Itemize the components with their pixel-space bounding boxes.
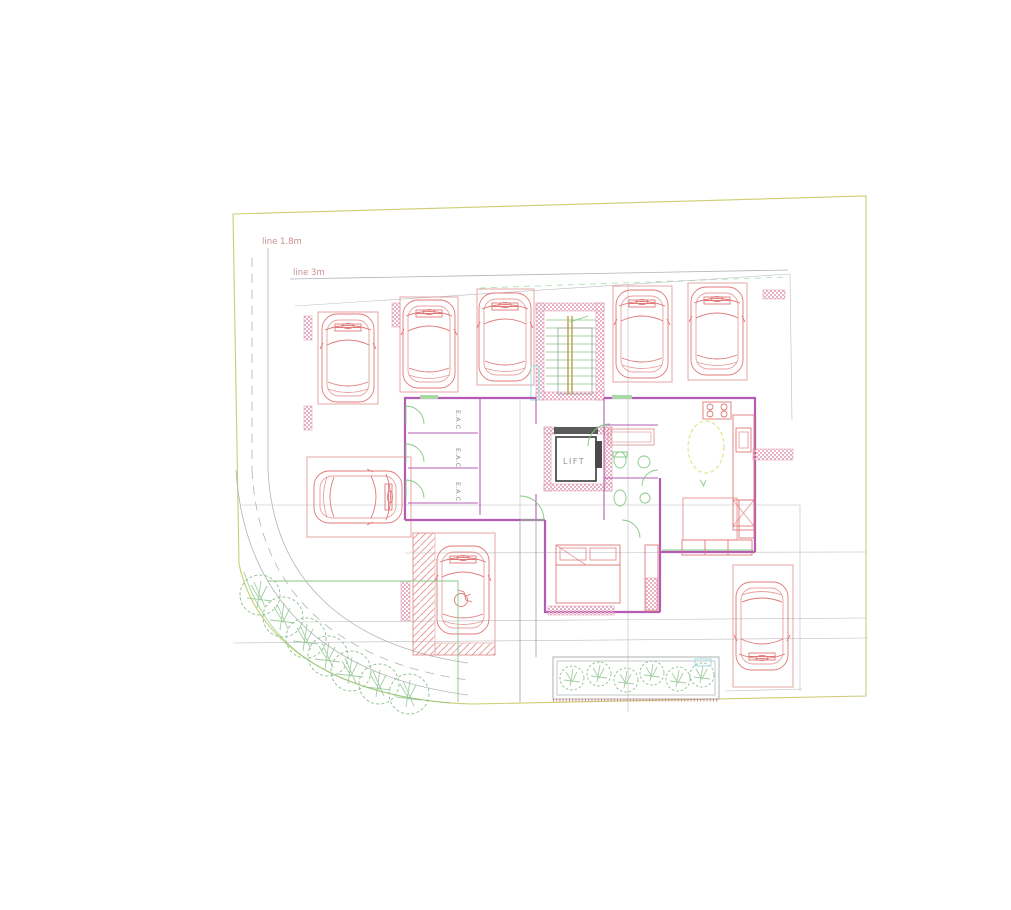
setback-annotations: line 1.8m line 3m	[262, 237, 325, 278]
plant-sprig	[700, 480, 706, 487]
parking-left	[307, 457, 411, 537]
storage-doors	[406, 406, 424, 498]
lift-label: LIFT	[563, 457, 585, 466]
storage-room-label: E.A.C	[454, 410, 462, 430]
bidet	[614, 490, 626, 506]
car-icon	[314, 469, 402, 525]
car-icon	[734, 582, 790, 670]
parking-stall	[307, 457, 411, 537]
bedroom	[556, 545, 658, 611]
bed	[556, 545, 620, 603]
parking-bottom-right	[733, 565, 793, 687]
window-strip	[420, 395, 438, 399]
kitchen	[703, 402, 754, 530]
storage-room-label: E.A.C	[454, 482, 462, 502]
stove	[703, 402, 731, 419]
planter-strip	[553, 657, 719, 700]
car-icon	[477, 293, 533, 381]
stair-treads	[546, 320, 596, 384]
lift-counterweight	[595, 441, 602, 468]
window-strip	[612, 395, 632, 399]
storage-room-label: E.A.C	[454, 448, 462, 468]
lobby-door	[520, 496, 544, 520]
party-wall-hatch	[753, 449, 793, 460]
dining-table	[688, 421, 724, 473]
floor-plan-canvas: line 1.8m line 3m	[0, 0, 1011, 910]
car-icon	[401, 300, 457, 388]
armchair	[739, 500, 754, 538]
road-kerb-lines	[236, 248, 792, 695]
car-icon	[614, 290, 670, 378]
parking-disabled	[413, 533, 495, 655]
lift-shaft: LIFT	[544, 427, 612, 491]
dining-living	[682, 421, 754, 555]
setback-line-18-label: line 1.8m	[262, 237, 302, 247]
storage-rooms: E.A.C E.A.C E.A.C	[406, 406, 462, 502]
setback-line-3-label: line 3m	[293, 268, 325, 278]
pillow	[590, 548, 616, 560]
parking-stall	[733, 565, 793, 687]
basin	[638, 456, 650, 468]
basin	[640, 493, 650, 503]
hatched-ramp-strip	[435, 643, 495, 655]
lift-door	[554, 427, 598, 434]
car-icon	[320, 314, 376, 402]
parking-row-top	[318, 283, 747, 404]
toilet	[614, 452, 626, 468]
bathroom	[608, 429, 658, 506]
bedroom-door	[622, 520, 640, 538]
bathtub	[608, 429, 654, 445]
staircase	[531, 303, 604, 400]
car-icon	[689, 287, 745, 375]
wheelchair-icon	[455, 590, 473, 607]
hatched-ramp-strip	[413, 533, 435, 655]
site-plan-drawing: line 1.8m line 3m	[0, 0, 1011, 910]
rug	[683, 498, 737, 540]
bedroom-wall-hatch	[548, 606, 614, 615]
entry-walkway	[520, 520, 536, 702]
